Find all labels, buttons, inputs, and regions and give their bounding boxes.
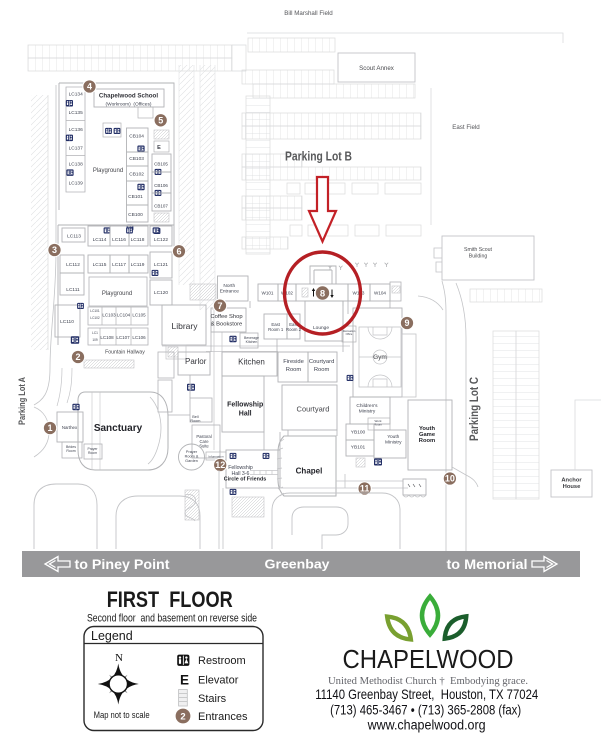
svg-text:Entrance: Entrance bbox=[220, 289, 240, 295]
svg-text:CB104: CB104 bbox=[129, 134, 144, 140]
svg-text:Courtyard: Courtyard bbox=[297, 405, 330, 414]
svg-text:1: 1 bbox=[47, 423, 52, 433]
svg-text:East Field: East Field bbox=[452, 124, 480, 131]
svg-text:7: 7 bbox=[217, 301, 222, 311]
svg-text:10: 10 bbox=[445, 474, 455, 484]
svg-text:6: 6 bbox=[176, 247, 181, 257]
svg-text:Entrances: Entrances bbox=[198, 711, 248, 723]
svg-text:Parking Lot A: Parking Lot A bbox=[17, 377, 28, 425]
svg-text:YB100: YB100 bbox=[351, 430, 366, 436]
svg-text:Ministry: Ministry bbox=[359, 408, 376, 414]
svg-text:LC134: LC134 bbox=[69, 92, 83, 98]
svg-text:LC136: LC136 bbox=[69, 127, 83, 133]
svg-text:North: North bbox=[223, 283, 235, 289]
svg-text:Elevator: Elevator bbox=[198, 675, 239, 687]
svg-text:Courtyard: Courtyard bbox=[309, 359, 334, 365]
svg-text:Office: Office bbox=[346, 332, 353, 336]
svg-text:11140 Greenbay Street, Housto: 11140 Greenbay Street, Houston, TX 77024 bbox=[315, 686, 538, 702]
svg-text:5: 5 bbox=[158, 116, 163, 126]
svg-text:Building: Building bbox=[469, 254, 488, 260]
svg-text:LC103: LC103 bbox=[102, 313, 116, 318]
svg-text:Ministry: Ministry bbox=[385, 439, 402, 445]
svg-text:Scout Annex: Scout Annex bbox=[359, 65, 395, 72]
svg-text:(Workroom) (Offices): (Workroom) (Offices) bbox=[106, 102, 152, 108]
svg-text:Kitchen: Kitchen bbox=[246, 340, 258, 344]
svg-text:LC101: LC101 bbox=[90, 309, 100, 313]
svg-text:LC1: LC1 bbox=[92, 331, 98, 335]
svg-text:& Bookstore: & Bookstore bbox=[211, 322, 243, 328]
svg-text:Map not to scale: Map not to scale bbox=[94, 710, 150, 720]
svg-text:Sanctuary: Sanctuary bbox=[94, 423, 143, 434]
svg-text:Garden: Garden bbox=[185, 459, 198, 463]
svg-text:E: E bbox=[180, 672, 189, 687]
svg-text:N: N bbox=[115, 652, 123, 664]
svg-text:YB101: YB101 bbox=[351, 445, 366, 451]
svg-text:CHAPELWOOD: CHAPELWOOD bbox=[343, 644, 514, 674]
svg-text:LC112: LC112 bbox=[66, 262, 80, 268]
svg-text:CB105: CB105 bbox=[154, 162, 168, 167]
svg-text:LC121: LC121 bbox=[154, 262, 168, 268]
svg-text:LC117: LC117 bbox=[112, 262, 126, 268]
svg-text:www.chapelwood.org: www.chapelwood.org bbox=[367, 718, 486, 733]
svg-text:Fellowship: Fellowship bbox=[227, 402, 263, 409]
svg-text:Smith Scout: Smith Scout bbox=[464, 247, 493, 253]
svg-text:LC114: LC114 bbox=[93, 237, 107, 243]
svg-text:to Memorial: to Memorial bbox=[447, 557, 528, 572]
svg-text:CB102: CB102 bbox=[129, 172, 144, 178]
svg-text:Chapelwood School: Chapelwood School bbox=[99, 93, 158, 100]
svg-text:2: 2 bbox=[180, 712, 185, 723]
svg-text:Room: Room bbox=[88, 451, 97, 455]
svg-text:11: 11 bbox=[360, 484, 370, 494]
svg-text:LC105: LC105 bbox=[132, 313, 146, 318]
svg-text:Fireside: Fireside bbox=[283, 359, 304, 365]
svg-text:Room: Room bbox=[374, 422, 383, 426]
svg-text:Room 1: Room 1 bbox=[268, 327, 284, 332]
svg-text:LC116: LC116 bbox=[112, 237, 126, 243]
svg-text:FIRST FLOOR: FIRST FLOOR bbox=[107, 587, 233, 612]
svg-text:Library: Library bbox=[172, 321, 199, 331]
svg-text:Room: Room bbox=[314, 367, 330, 373]
svg-text:8: 8 bbox=[320, 288, 325, 299]
svg-text:LC110: LC110 bbox=[60, 319, 74, 325]
svg-text:Circle of Friends: Circle of Friends bbox=[224, 477, 267, 483]
svg-text:Room &: Room & bbox=[185, 454, 199, 458]
svg-text:W101: W101 bbox=[261, 291, 273, 296]
svg-text:Parlor: Parlor bbox=[185, 357, 207, 366]
svg-text:House: House bbox=[563, 484, 581, 490]
svg-text:Chapel: Chapel bbox=[296, 467, 323, 476]
svg-text:to Piney Point: to Piney Point bbox=[75, 557, 171, 572]
svg-text:LC113: LC113 bbox=[67, 234, 81, 240]
svg-text:Narthex: Narthex bbox=[62, 425, 78, 430]
svg-text:LC137: LC137 bbox=[69, 145, 83, 151]
svg-text:Legend: Legend bbox=[91, 629, 133, 643]
svg-text:CB100: CB100 bbox=[128, 212, 143, 218]
svg-text:LC118: LC118 bbox=[131, 237, 145, 243]
svg-text:E: E bbox=[157, 145, 161, 151]
svg-text:Children's: Children's bbox=[356, 403, 378, 409]
svg-text:Second floor and basement on: Second floor and basement on reverse sid… bbox=[87, 613, 257, 625]
svg-text:W104: W104 bbox=[374, 291, 386, 296]
svg-text:Youth: Youth bbox=[387, 434, 399, 440]
svg-text:4: 4 bbox=[87, 82, 92, 92]
svg-text:LC115: LC115 bbox=[93, 262, 107, 268]
svg-text:LC104: LC104 bbox=[117, 313, 131, 318]
svg-text:Room: Room bbox=[419, 438, 435, 444]
svg-text:Coffee Shop: Coffee Shop bbox=[210, 314, 242, 320]
svg-text:Gym: Gym bbox=[373, 354, 387, 361]
svg-text:Kitchen: Kitchen bbox=[238, 358, 265, 367]
svg-text:2: 2 bbox=[75, 352, 80, 362]
svg-text:Room 2: Room 2 bbox=[286, 327, 302, 332]
svg-text:Playground: Playground bbox=[102, 291, 132, 297]
svg-text:109: 109 bbox=[92, 338, 98, 342]
svg-text:LC108: LC108 bbox=[100, 335, 114, 340]
svg-text:Restroom: Restroom bbox=[198, 655, 246, 667]
svg-text:Bill Marshall Field: Bill Marshall Field bbox=[284, 10, 333, 17]
svg-text:(713) 465-3467 • (713) 365-280: (713) 465-3467 • (713) 365-2808 (fax) bbox=[330, 702, 521, 718]
svg-text:LC107: LC107 bbox=[116, 335, 130, 340]
svg-text:Playground: Playground bbox=[93, 168, 123, 174]
svg-text:Prayer: Prayer bbox=[186, 450, 198, 454]
svg-text:9: 9 bbox=[404, 318, 409, 328]
svg-text:Lounge: Lounge bbox=[313, 325, 329, 331]
svg-text:LC102: LC102 bbox=[90, 316, 100, 320]
svg-text:CB101: CB101 bbox=[128, 194, 143, 200]
svg-text:3: 3 bbox=[52, 245, 57, 255]
svg-text:Stairs: Stairs bbox=[198, 693, 227, 705]
svg-text:Parking Lot C: Parking Lot C bbox=[469, 377, 481, 441]
svg-text:LC138: LC138 bbox=[69, 161, 83, 167]
svg-text:Anchor: Anchor bbox=[561, 478, 582, 484]
svg-text:LC120: LC120 bbox=[154, 290, 168, 296]
svg-text:LC122: LC122 bbox=[154, 237, 168, 243]
svg-text:Fountain Hallway: Fountain Hallway bbox=[105, 350, 145, 356]
svg-text:12: 12 bbox=[215, 460, 225, 470]
svg-text:Hall: Hall bbox=[239, 410, 252, 417]
svg-text:Parking Lot B: Parking Lot B bbox=[285, 150, 352, 164]
svg-text:Room: Room bbox=[286, 367, 302, 373]
svg-text:CB103: CB103 bbox=[129, 156, 144, 162]
svg-text:LC111: LC111 bbox=[66, 287, 80, 293]
svg-text:CB107: CB107 bbox=[154, 204, 168, 209]
svg-text:Greenbay: Greenbay bbox=[265, 558, 330, 572]
svg-text:W103: W103 bbox=[352, 291, 364, 296]
svg-text:CB106: CB106 bbox=[154, 183, 168, 188]
svg-text:LC139: LC139 bbox=[69, 181, 83, 187]
svg-text:LC119: LC119 bbox=[131, 262, 145, 268]
svg-text:Room: Room bbox=[66, 449, 75, 453]
svg-text:LC135: LC135 bbox=[69, 110, 83, 116]
svg-text:LC106: LC106 bbox=[132, 335, 146, 340]
svg-text:Room: Room bbox=[190, 419, 200, 423]
